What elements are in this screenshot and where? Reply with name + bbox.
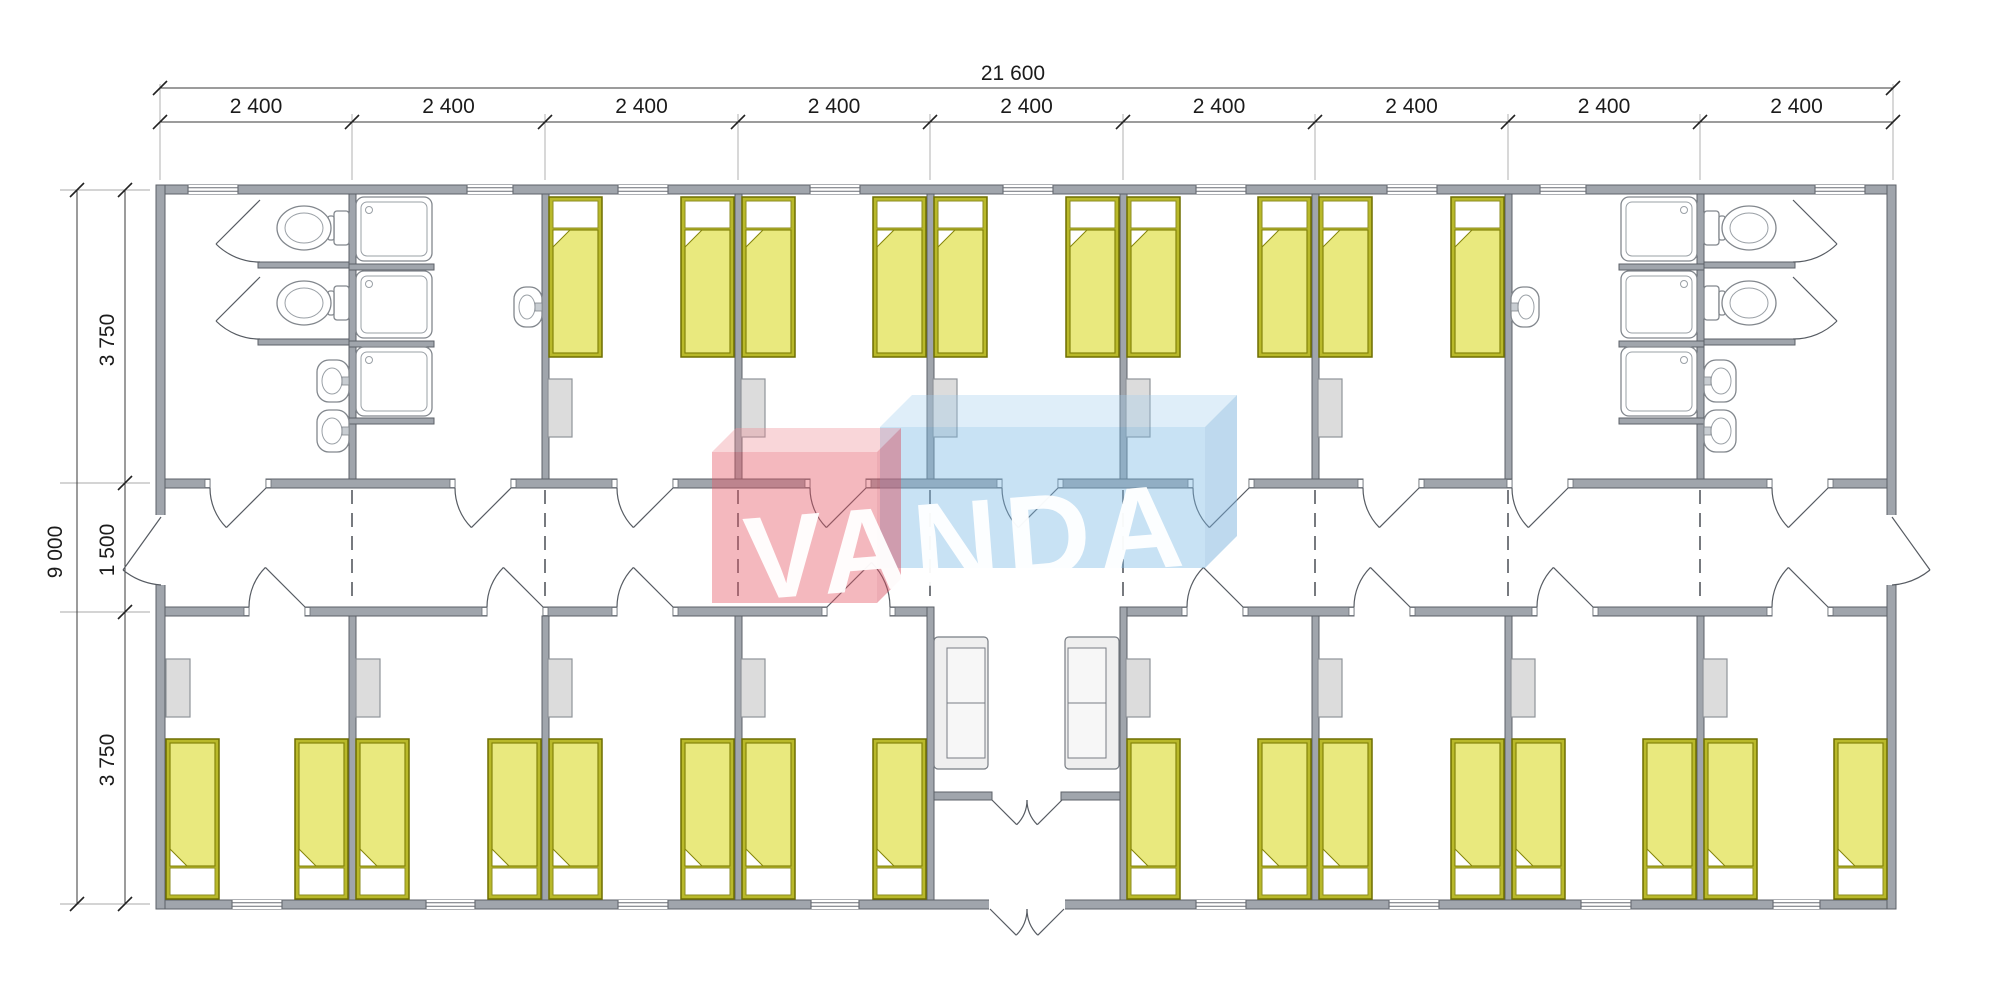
door-arc (617, 567, 633, 607)
shower-cabin (356, 197, 432, 261)
wall (1704, 262, 1795, 268)
door-jamb (1419, 480, 1424, 488)
window (188, 185, 238, 194)
door-jamb (1828, 608, 1833, 616)
window-glass (1003, 185, 1053, 194)
sink (317, 360, 349, 402)
door-leaf (216, 200, 260, 244)
bed (873, 739, 926, 899)
bed-blanket (299, 743, 344, 866)
door-arc (1512, 488, 1528, 528)
wall (258, 339, 349, 345)
dimension-label: 2 400 (230, 95, 283, 118)
bed-pillow (492, 868, 537, 895)
entrance-door (1027, 800, 1062, 825)
door-jamb (1507, 480, 1512, 488)
door-arc (1793, 244, 1837, 262)
wall-opening (989, 899, 1065, 910)
floor-plan-drawing: 21 6002 4002 4002 4002 4002 4002 4002 40… (0, 0, 2000, 999)
room-door (210, 488, 266, 528)
bed-blanket (938, 230, 983, 353)
toilet (1704, 206, 1776, 250)
door-arc (1892, 570, 1930, 585)
door-arc (1537, 567, 1553, 607)
bed-pillow (746, 201, 791, 228)
logo-red-box-top (712, 428, 901, 452)
bed-pillow (1708, 868, 1753, 895)
dimension-label: 2 400 (1193, 95, 1246, 118)
bed-blanket (492, 743, 537, 866)
wall-opening (1886, 515, 1897, 585)
bed (549, 739, 602, 899)
bed (1066, 197, 1119, 357)
wall (927, 607, 934, 900)
door-jamb (450, 480, 455, 488)
door-jamb (266, 480, 271, 488)
bed (1451, 197, 1504, 357)
door-jamb (673, 608, 678, 616)
bed-pillow (553, 868, 598, 895)
room-door (1512, 488, 1568, 528)
corridor-wall (1243, 607, 1354, 616)
sink-tap (1704, 427, 1711, 435)
room-door (1187, 567, 1243, 607)
door-leaf (1788, 567, 1828, 607)
toilet-tank (334, 286, 349, 320)
corridor-wall (1593, 607, 1772, 616)
sofa (934, 637, 988, 769)
door-jamb (482, 608, 487, 616)
bed-blanket (1455, 230, 1500, 353)
locker (356, 659, 380, 717)
bed-blanket (1070, 230, 1115, 353)
window (1540, 185, 1586, 194)
window (1387, 185, 1437, 194)
locker (548, 659, 572, 717)
bed (166, 739, 219, 899)
window (810, 185, 860, 194)
door-leaf (633, 567, 673, 607)
wall (349, 341, 434, 347)
exterior-side-door (1892, 517, 1930, 585)
window (1196, 185, 1246, 194)
window-glass (1540, 185, 1586, 194)
room-door (617, 567, 673, 607)
dimension-label: 3 750 (96, 314, 119, 367)
door-jamb (1358, 480, 1363, 488)
door-leaf (471, 488, 511, 528)
door-arc (1363, 488, 1379, 528)
window (232, 900, 282, 909)
bed (934, 197, 987, 357)
door-leaf (1793, 277, 1837, 321)
shower-cabin (1621, 197, 1697, 261)
wall (1704, 339, 1795, 345)
room-door (1772, 488, 1828, 528)
window (1815, 185, 1865, 194)
shower-cabin (1621, 347, 1697, 416)
window (1773, 900, 1820, 909)
toilet-tank (334, 211, 349, 245)
sink (1704, 360, 1736, 402)
bed-blanket (685, 743, 730, 866)
window-glass (1815, 185, 1865, 194)
bed-blanket (1647, 743, 1692, 866)
door-leaf (1528, 488, 1568, 528)
door-jamb (1182, 608, 1187, 616)
door-arc (216, 244, 260, 262)
door-jamb (244, 608, 249, 616)
dimension-label: 2 400 (615, 95, 668, 118)
bed-blanket (553, 743, 598, 866)
locker (1511, 659, 1535, 717)
wall (349, 418, 434, 424)
wall-opening (155, 515, 166, 585)
corridor-wall (1249, 479, 1363, 488)
bed (1319, 739, 1372, 899)
window-glass (188, 185, 238, 194)
sink-tap (535, 303, 542, 311)
corridor-wall (1568, 479, 1772, 488)
bed (873, 197, 926, 357)
door-jamb (1767, 608, 1772, 616)
window-glass (1581, 900, 1631, 909)
sofa (1065, 637, 1119, 769)
bed (1127, 197, 1180, 357)
bed-pillow (746, 868, 791, 895)
locker (1318, 659, 1342, 717)
bed-pillow (1131, 201, 1176, 228)
room-door (617, 488, 673, 528)
stall-door (216, 200, 260, 262)
door-arc (210, 488, 226, 528)
door-jamb (673, 480, 678, 488)
bed (295, 739, 348, 899)
window-glass (232, 900, 282, 909)
bed-pillow (1323, 201, 1368, 228)
door-jamb (543, 608, 548, 616)
door-jamb (1828, 480, 1833, 488)
shower-cabin (356, 347, 432, 416)
locker (166, 659, 190, 717)
entrance-door (992, 800, 1027, 825)
bed-pillow (1516, 868, 1561, 895)
room-door (1354, 567, 1410, 607)
shower-cabin (356, 271, 432, 338)
door-leaf (992, 800, 1017, 825)
window-glass (426, 900, 475, 909)
dimension-label: 2 400 (1770, 95, 1823, 118)
door-jamb (612, 608, 617, 616)
bed-pillow (938, 201, 983, 228)
bed-pillow (1131, 868, 1176, 895)
wall (1619, 418, 1704, 424)
window (467, 185, 513, 194)
room-door (1772, 567, 1828, 607)
sink (514, 287, 542, 327)
bed-pillow (1323, 868, 1368, 895)
room-door (455, 488, 511, 528)
door-arc (1354, 567, 1370, 607)
door-leaf (1370, 567, 1410, 607)
dimension-label: 2 400 (422, 95, 475, 118)
room-door (249, 567, 305, 607)
door-leaf (1793, 200, 1837, 244)
wall (1619, 341, 1704, 347)
bed (681, 197, 734, 357)
sink (1704, 410, 1736, 452)
bed-pillow (299, 868, 344, 895)
wall (258, 262, 349, 268)
sink-tap (342, 427, 349, 435)
window-glass (467, 185, 513, 194)
bed-blanket (1708, 743, 1753, 866)
door-leaf (1038, 909, 1064, 935)
door-arc (617, 488, 633, 528)
bed (681, 739, 734, 899)
entrance-door (1027, 909, 1064, 935)
bed-blanket (360, 743, 405, 866)
wall (1619, 264, 1704, 270)
bed-blanket (1131, 230, 1176, 353)
corridor-wall (1419, 479, 1512, 488)
bed-blanket (1262, 230, 1307, 353)
door-jamb (1243, 608, 1248, 616)
locker (741, 659, 765, 717)
bed-blanket (746, 230, 791, 353)
dimension-label: 2 400 (1578, 95, 1631, 118)
watermark-logo: VANDA (712, 395, 1237, 626)
room-door (1363, 488, 1419, 528)
corridor-wall (1828, 479, 1887, 488)
door-arc (487, 567, 503, 607)
door-jamb (1767, 480, 1772, 488)
bed-blanket (170, 743, 215, 866)
door-jamb (205, 480, 210, 488)
corridor-wall (511, 479, 617, 488)
door-jamb (511, 480, 516, 488)
bed-blanket (1323, 743, 1368, 866)
dimension-label: 1 500 (96, 524, 119, 577)
bed-pillow (170, 868, 215, 895)
toilet-tank (1704, 286, 1719, 320)
window (1196, 900, 1246, 909)
bed-pillow (1070, 201, 1115, 228)
door-arc (1017, 800, 1027, 825)
door-leaf (1788, 488, 1828, 528)
door-leaf (216, 277, 260, 321)
toilet (1704, 281, 1776, 325)
door-leaf (226, 488, 266, 528)
door-arc (216, 321, 260, 339)
bed-blanket (553, 230, 598, 353)
dimension-label: 3 750 (96, 734, 119, 787)
wall (934, 792, 992, 800)
locker (1318, 379, 1342, 437)
bed-pillow (1455, 201, 1500, 228)
bed-pillow (1262, 868, 1307, 895)
wall (349, 616, 356, 900)
bed-pillow (685, 201, 730, 228)
window (1581, 900, 1631, 909)
window-glass (618, 185, 668, 194)
sink-tap (342, 377, 349, 385)
shower-cabin (1621, 271, 1697, 338)
window (426, 900, 475, 909)
door-arc (1772, 488, 1788, 528)
bed (1451, 739, 1504, 899)
stall-door (1793, 200, 1837, 262)
room-door (1537, 567, 1593, 607)
bed-pillow (877, 201, 922, 228)
dimension-label: 2 400 (1000, 95, 1053, 118)
bed (1258, 739, 1311, 899)
toilet (277, 206, 349, 250)
room-door (487, 567, 543, 607)
corridor-wall (1410, 607, 1537, 616)
door-jamb (1532, 608, 1537, 616)
window-glass (618, 900, 668, 909)
sink (317, 410, 349, 452)
bed-pillow (1838, 868, 1883, 895)
wall (1061, 792, 1120, 800)
wall (1697, 194, 1704, 479)
door-jamb (1349, 608, 1354, 616)
door-arc (1793, 321, 1837, 339)
corridor-wall (1828, 607, 1887, 616)
door-leaf (1037, 800, 1062, 825)
bed-pillow (1262, 201, 1307, 228)
door-arc (1772, 567, 1788, 607)
bed-blanket (1838, 743, 1883, 866)
bed-pillow (553, 201, 598, 228)
bed-blanket (1262, 743, 1307, 866)
bed (1512, 739, 1565, 899)
door-arc (1016, 909, 1027, 935)
door-jamb (1568, 480, 1573, 488)
window (811, 900, 859, 909)
bed-blanket (1323, 230, 1368, 353)
bed-blanket (746, 743, 791, 866)
toilet (277, 281, 349, 325)
door-jamb (1593, 608, 1598, 616)
bed-blanket (1131, 743, 1176, 866)
bed (356, 739, 409, 899)
entrance-door (990, 909, 1027, 935)
bed-blanket (877, 230, 922, 353)
toilet-tank (1704, 211, 1719, 245)
door-leaf (990, 909, 1016, 935)
stall-door (216, 277, 260, 339)
corridor-wall (165, 607, 249, 616)
door-leaf (633, 488, 673, 528)
dimension-label: 9 000 (44, 526, 67, 579)
locker (1126, 659, 1150, 717)
wall (349, 194, 356, 479)
corridor-wall (165, 479, 210, 488)
corridor-wall (543, 607, 617, 616)
window-glass (1389, 900, 1439, 909)
door-arc (455, 488, 471, 528)
dimension-label: 2 400 (1385, 95, 1438, 118)
bed (488, 739, 541, 899)
window-glass (1773, 900, 1820, 909)
door-arc (249, 567, 265, 607)
door-leaf (265, 567, 305, 607)
door-leaf (1203, 567, 1243, 607)
window-glass (811, 900, 859, 909)
logo-blue-box-top (880, 395, 1237, 427)
stall-door (1793, 277, 1837, 339)
bed-pillow (360, 868, 405, 895)
bed (742, 739, 795, 899)
dimension-label: 2 400 (808, 95, 861, 118)
door-arc (1027, 800, 1037, 825)
window (618, 900, 668, 909)
locker (1703, 659, 1727, 717)
corridor-wall (305, 607, 487, 616)
sink-tap (1704, 377, 1711, 385)
bed (742, 197, 795, 357)
window-glass (1196, 900, 1246, 909)
wall (349, 264, 434, 270)
window-glass (1196, 185, 1246, 194)
door-jamb (305, 608, 310, 616)
bed-pillow (685, 868, 730, 895)
sink-tap (1511, 303, 1518, 311)
corridor-wall (266, 479, 455, 488)
door-jamb (1410, 608, 1415, 616)
door-leaf (503, 567, 543, 607)
window-glass (1387, 185, 1437, 194)
bed-pillow (1647, 868, 1692, 895)
door-leaf (1379, 488, 1419, 528)
bed (549, 197, 602, 357)
bed-pillow (877, 868, 922, 895)
sink (1511, 287, 1539, 327)
bed (1643, 739, 1696, 899)
door-leaf (1553, 567, 1593, 607)
door-jamb (1249, 480, 1254, 488)
window (1003, 185, 1053, 194)
bed-blanket (685, 230, 730, 353)
wall (1120, 607, 1127, 900)
bed (1258, 197, 1311, 357)
bed-blanket (1455, 743, 1500, 866)
door-leaf (1892, 517, 1930, 570)
bed-blanket (877, 743, 922, 866)
wall (1505, 194, 1512, 479)
bed (1834, 739, 1887, 899)
corridor-wall (1127, 607, 1187, 616)
bed (1127, 739, 1180, 899)
bed-pillow (1455, 868, 1500, 895)
window-glass (810, 185, 860, 194)
locker (548, 379, 572, 437)
bed (1319, 197, 1372, 357)
window (618, 185, 668, 194)
bed-blanket (1516, 743, 1561, 866)
door-jamb (612, 480, 617, 488)
door-arc (1027, 909, 1038, 935)
floor-plan-page: 21 6002 4002 4002 4002 4002 4002 4002 40… (0, 0, 2000, 999)
dimension-label: 21 600 (981, 62, 1045, 85)
window (1389, 900, 1439, 909)
bed (1704, 739, 1757, 899)
